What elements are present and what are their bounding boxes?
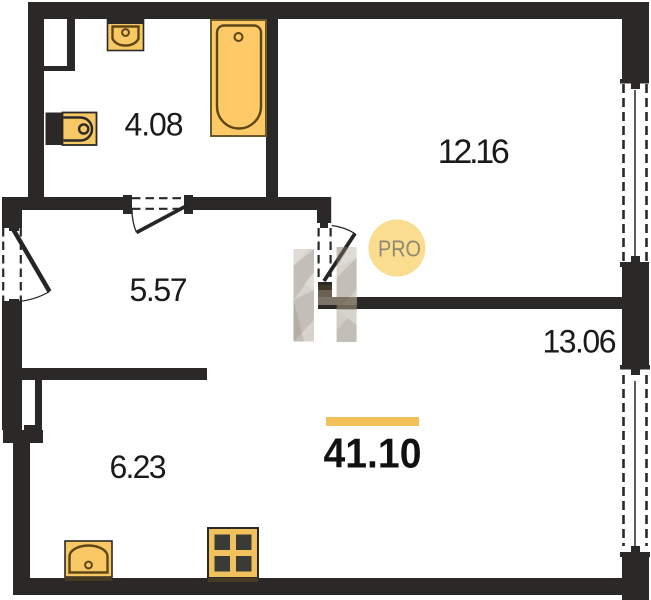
- svg-text:12.16: 12.16: [438, 133, 510, 171]
- svg-text:41.10: 41.10: [324, 430, 422, 477]
- svg-text:5.57: 5.57: [130, 272, 188, 308]
- svg-text:13.06: 13.06: [543, 324, 617, 360]
- svg-text:4.08: 4.08: [125, 107, 184, 143]
- svg-text:PRO: PRO: [378, 236, 421, 262]
- svg-text:6.23: 6.23: [110, 449, 167, 485]
